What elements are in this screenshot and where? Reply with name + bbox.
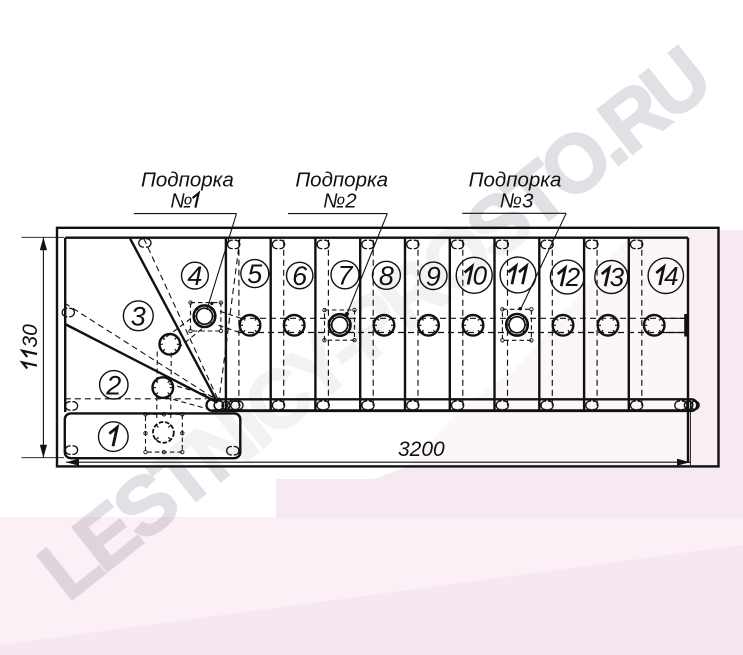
svg-text:4: 4: [187, 261, 202, 291]
svg-text:3: 3: [610, 262, 625, 292]
svg-text:4: 4: [664, 261, 678, 291]
svg-text:30: 30: [19, 324, 42, 348]
svg-text:№: №: [170, 190, 192, 213]
svg-text:3200: 3200: [398, 438, 445, 461]
svg-text:Подпорка: Подпорка: [141, 169, 234, 192]
svg-text:Подпорка: Подпорка: [295, 169, 388, 192]
svg-text:2: 2: [565, 262, 581, 292]
svg-text:Подпорка: Подпорка: [469, 169, 562, 192]
svg-text:5: 5: [247, 259, 263, 289]
svg-text:№3: №3: [500, 190, 534, 213]
svg-text:8: 8: [379, 261, 394, 291]
svg-text:7: 7: [337, 260, 353, 290]
svg-text:6: 6: [292, 261, 308, 291]
svg-text:0: 0: [473, 261, 488, 291]
svg-text:3: 3: [131, 301, 146, 331]
svg-text:2: 2: [105, 370, 121, 400]
svg-text:9: 9: [426, 261, 441, 291]
svg-text:№2: №2: [323, 190, 357, 213]
